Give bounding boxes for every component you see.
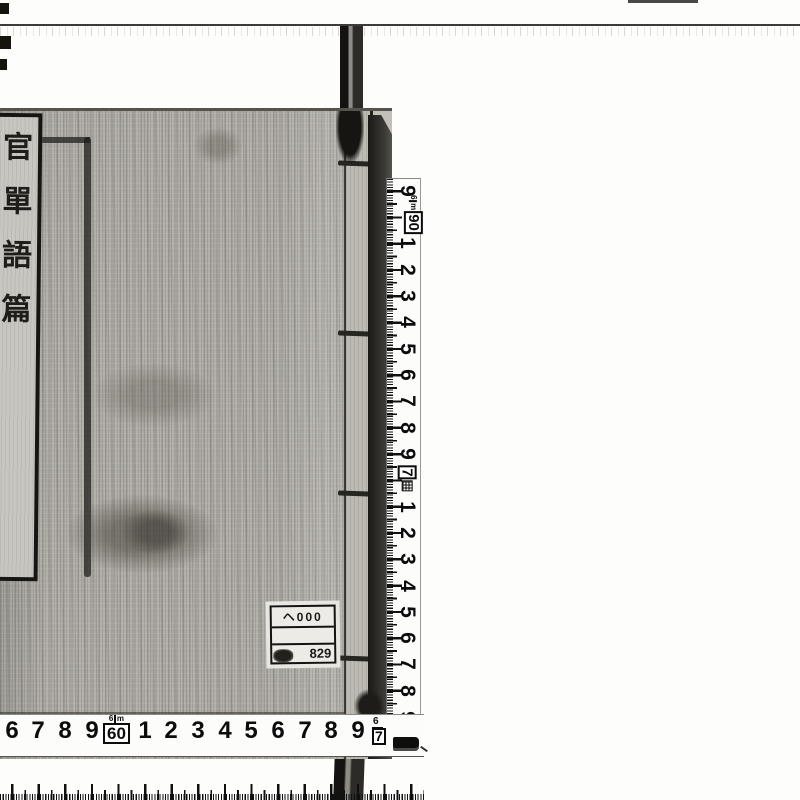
- ruler-number: 7: [396, 653, 418, 675]
- title-slip: 官單語篇: [0, 113, 42, 582]
- ruler-number: 1: [396, 232, 418, 254]
- ruler-number: 1: [132, 717, 158, 745]
- meter-divider: [409, 201, 417, 203]
- call-number-line2: [272, 628, 334, 646]
- call-number-line3: 829: [272, 645, 334, 663]
- ruler-number: 7: [396, 390, 418, 412]
- call-number-label: ヘ000 829: [266, 600, 341, 668]
- ruler-number: 4: [396, 311, 418, 333]
- ruler-number: 7: [292, 717, 318, 745]
- meter-digit: 6: [109, 715, 113, 723]
- tape-end-clip: [393, 737, 419, 751]
- cover-stain: [194, 127, 242, 165]
- stand-post-top: [340, 26, 363, 112]
- horizontal-ruler: 6 7 8 9 6 m 60 1 2 3 4 5 6 7 8 9 6 7: [0, 714, 424, 757]
- meter-unit: m: [409, 203, 417, 210]
- horizontal-ruler-ticks: [0, 784, 424, 800]
- ruler-decade-box-60: 6 m 60: [103, 715, 130, 744]
- ruler-number: 9: [396, 443, 418, 465]
- ruler-number: 4: [212, 717, 238, 745]
- spine-top-shadow: [336, 111, 364, 163]
- film-mark: [0, 36, 11, 49]
- decade-value: 90: [404, 211, 423, 234]
- meter-divider: [114, 715, 116, 723]
- binding-stitch: [338, 330, 370, 336]
- meter-label: 6 m: [109, 715, 124, 723]
- call-number-line1: ヘ000: [272, 607, 334, 629]
- title-slip-text: 官單語篇: [0, 131, 31, 347]
- cover-stain: [120, 509, 190, 555]
- label-ink-smudge: [273, 649, 293, 662]
- ruler-number: 8: [318, 717, 344, 745]
- meter-digit: 6: [372, 717, 383, 728]
- ruler-number: 3: [185, 717, 211, 745]
- ruler-meter-box-7: 7: [398, 465, 417, 491]
- call-number-value: 829: [309, 646, 331, 661]
- binding-stitch: [338, 490, 370, 496]
- ruler-number: 8: [52, 717, 78, 745]
- meter-unit: m: [117, 715, 124, 723]
- film-edge-line: [0, 24, 800, 26]
- ruler-number: 4: [396, 575, 418, 597]
- ruler-number: 6: [265, 717, 291, 745]
- ruler-number: 6: [396, 364, 418, 386]
- ruler-number: 6: [0, 717, 25, 745]
- film-mark: [0, 3, 9, 14]
- ruler-number: 2: [396, 522, 418, 544]
- ruler-number: 5: [396, 338, 418, 360]
- ruler-number: 9: [79, 717, 105, 745]
- cover-stain: [92, 363, 216, 427]
- ruler-number: 9: [345, 717, 371, 745]
- ruler-number: 2: [158, 717, 184, 745]
- ruler-number: 5: [238, 717, 264, 745]
- ruler-number: 1: [396, 496, 418, 518]
- ruler-number: 5: [396, 601, 418, 623]
- call-number-frame: ヘ000 829: [270, 605, 337, 665]
- ruler-number: 8: [396, 417, 418, 439]
- ruler-number: 2: [396, 259, 418, 281]
- ruler-number: 8: [396, 680, 418, 702]
- binding-stitch: [338, 655, 370, 661]
- meter-grid-icon: [402, 481, 413, 492]
- meter-digit: 6: [409, 195, 417, 199]
- meter-value: 7: [398, 465, 417, 479]
- ruler-number: 3: [396, 285, 418, 307]
- ruler-number: 6: [396, 627, 418, 649]
- film-mark: [0, 59, 7, 70]
- ruler-decade-box-90: 6 m 90: [404, 195, 423, 234]
- vertical-ruler: 9 6 m 90 1 2 3 4 5 6 7 8 9 7 1 2 3 4 5 6…: [386, 178, 421, 757]
- ruler-number: 3: [396, 548, 418, 570]
- film-edge-line-top: [628, 0, 698, 3]
- film-noise-band: [0, 27, 800, 36]
- end-value: 7: [372, 728, 386, 745]
- ruler-number: 7: [25, 717, 51, 745]
- ruler-end-mark-70: 6 7: [372, 717, 386, 745]
- meter-label: 6 m: [409, 195, 417, 210]
- book-scan-photo: 官單語篇 ヘ000 829 9 6 m 90 1 2 3 4 5 6 7: [0, 0, 800, 800]
- decade-value: 60: [103, 723, 130, 744]
